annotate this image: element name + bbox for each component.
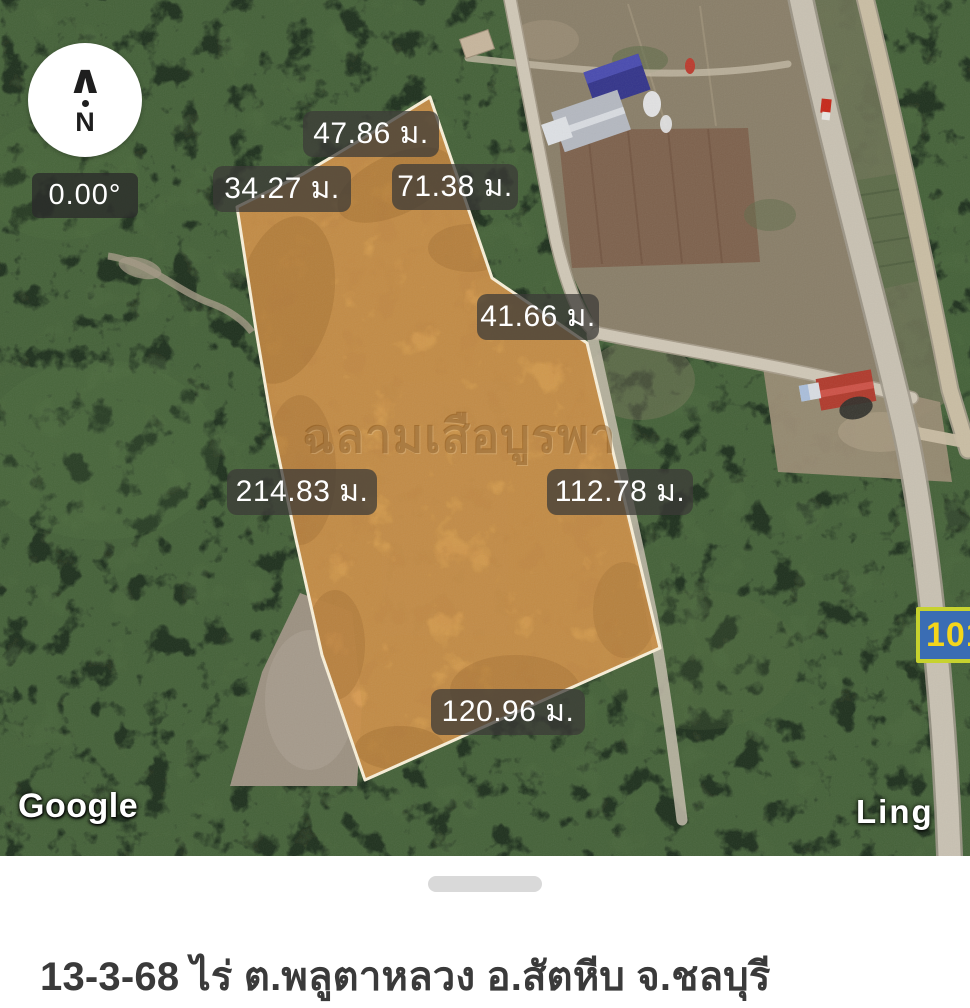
bottom-sheet: 13-3-68 ไร่ ต.พลูตาหลวง อ.สัตหีบ จ.ชลบุร… (0, 856, 970, 1000)
listing-title: 13-3-68 ไร่ ต.พลูตาหลวง อ.สัตหีบ จ.ชลบุร… (40, 944, 771, 1008)
measurement-label-southeast: 112.78 ม. (547, 469, 693, 515)
place-label: Ling (856, 793, 934, 831)
measurement-label-northeast-upper: 71.38 ม. (392, 164, 518, 210)
compass-north-letter: N (75, 109, 95, 136)
measurement-label-northeast-lower: 41.66 ม. (477, 294, 599, 340)
measurement-label-northwest: 34.27 ม. (213, 166, 351, 212)
route-number-text: 10 (926, 616, 966, 655)
google-logo: Google (18, 787, 138, 826)
compass-button[interactable]: ∧ N (28, 43, 142, 157)
route-number-sign: 101 (916, 607, 970, 663)
measurement-label-south: 120.96 ม. (431, 689, 585, 735)
route-number-partial-digit: 1 (966, 616, 970, 655)
compass-north-arrow-icon: ∧ (66, 64, 103, 96)
measurement-label-west: 214.83 ม. (227, 469, 377, 515)
screen: ฉลามเสือบูรพา 47.86 ม. 34.27 ม. 71.38 ม.… (0, 0, 970, 1000)
measurement-label-north-top: 47.86 ม. (303, 111, 439, 157)
drag-handle[interactable] (428, 876, 542, 892)
map-view[interactable]: ฉลามเสือบูรพา 47.86 ม. 34.27 ม. 71.38 ม.… (0, 0, 970, 856)
bearing-readout: 0.00° (32, 173, 138, 218)
watermark-text: ฉลามเสือบูรพา (302, 398, 617, 473)
